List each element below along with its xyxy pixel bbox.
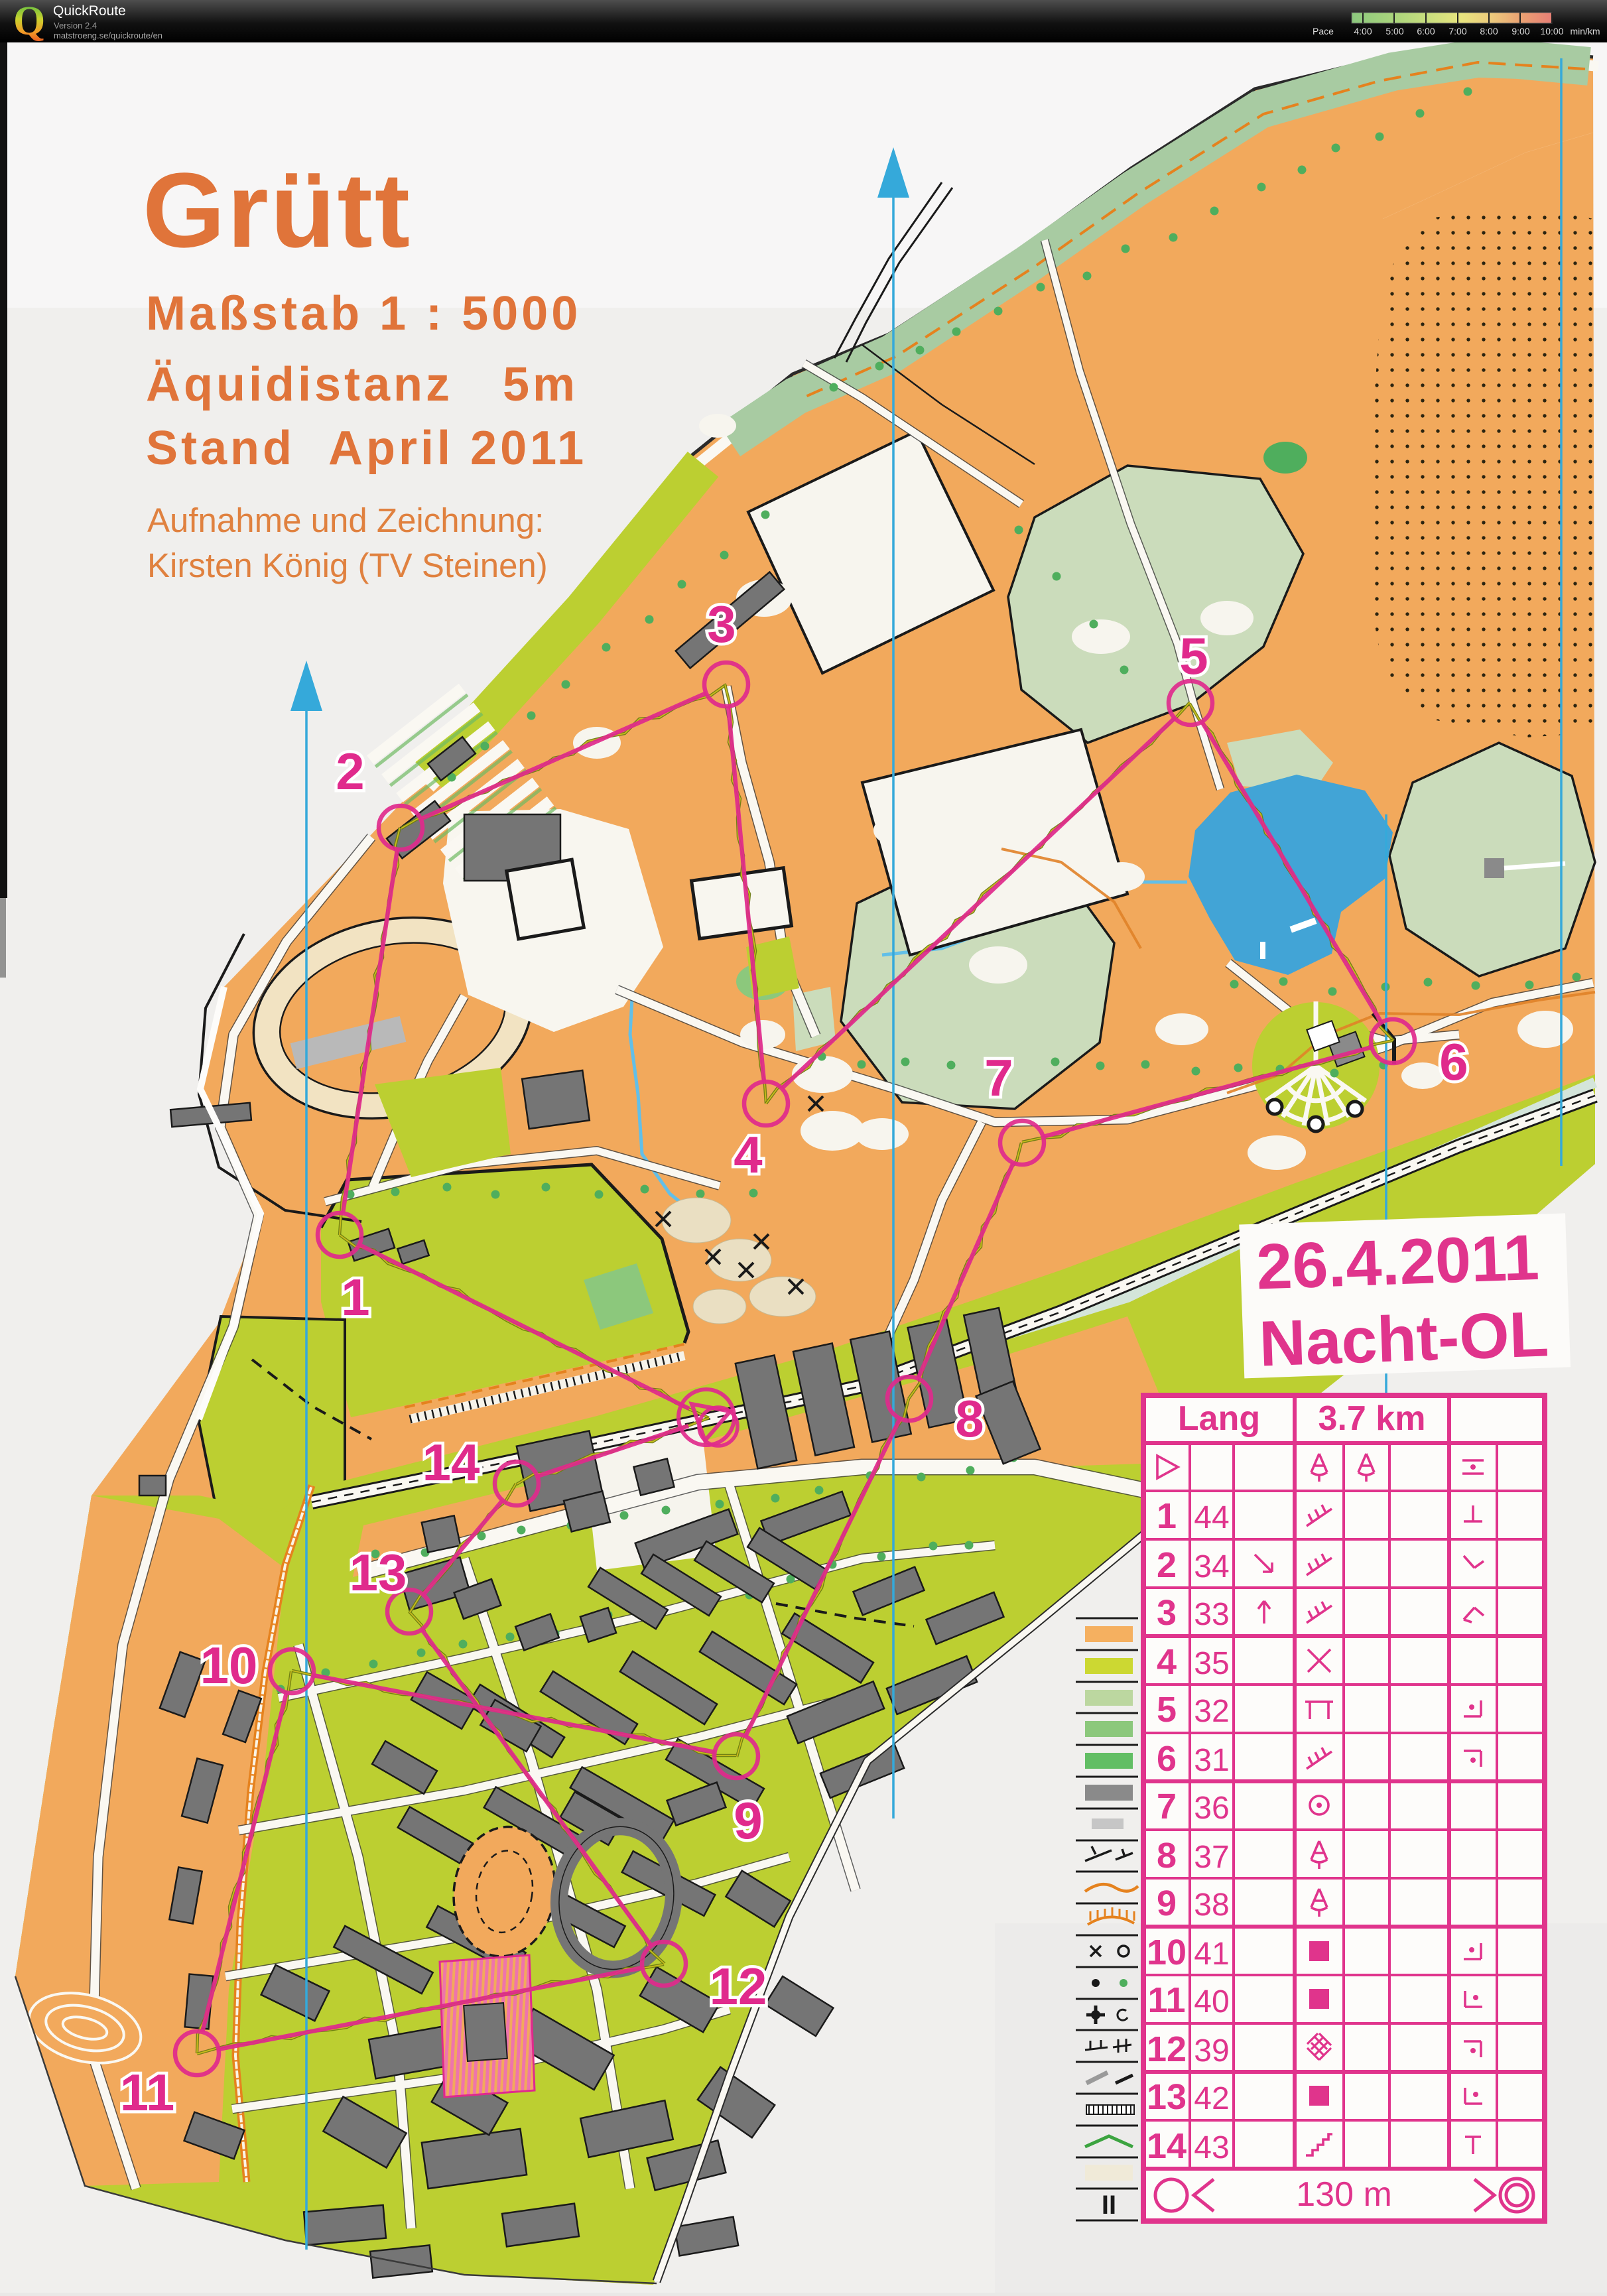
svg-text:Kirsten König (TV Steinen): Kirsten König (TV Steinen): [147, 546, 548, 584]
svg-text:9:00: 9:00: [1511, 26, 1529, 36]
svg-text:9: 9: [734, 1791, 762, 1850]
svg-text:3: 3: [1157, 1593, 1177, 1633]
svg-text:3: 3: [707, 595, 736, 653]
svg-text:37: 37: [1194, 1840, 1229, 1875]
svg-text:26.4.2011: 26.4.2011: [1255, 1221, 1541, 1303]
svg-text:10: 10: [1147, 1933, 1187, 1972]
svg-text:5:00: 5:00: [1385, 26, 1403, 36]
svg-text:Äquidistanz 5m: Äquidistanz 5m: [146, 358, 578, 411]
svg-text:41: 41: [1194, 1937, 1229, 1972]
svg-text:6: 6: [1439, 1033, 1468, 1091]
svg-text:1: 1: [1157, 1496, 1177, 1536]
svg-text:Q: Q: [13, 1, 45, 44]
svg-text:34: 34: [1194, 1549, 1229, 1584]
svg-text:4: 4: [734, 1125, 762, 1184]
svg-text:2: 2: [1157, 1545, 1177, 1585]
svg-text:Nacht-OL: Nacht-OL: [1258, 1297, 1550, 1379]
svg-text:2: 2: [336, 742, 364, 800]
svg-text:8: 8: [955, 1389, 984, 1448]
svg-text:31: 31: [1194, 1743, 1229, 1778]
svg-text:40: 40: [1194, 1984, 1229, 2019]
svg-text:5: 5: [1157, 1690, 1177, 1730]
svg-text:12: 12: [1147, 2029, 1187, 2069]
svg-text:42: 42: [1194, 2081, 1229, 2116]
svg-text:9: 9: [1157, 1883, 1177, 1923]
svg-text:130 m: 130 m: [1296, 2175, 1392, 2214]
svg-text:8: 8: [1157, 1836, 1177, 1876]
svg-text:Stand April 2011: Stand April 2011: [146, 422, 587, 475]
svg-text:38: 38: [1194, 1887, 1229, 1923]
svg-text:Grütt: Grütt: [143, 151, 412, 269]
svg-text:33: 33: [1194, 1597, 1229, 1632]
svg-text:3.7 km: 3.7 km: [1318, 1399, 1426, 1438]
svg-text:7: 7: [1157, 1787, 1177, 1826]
svg-text:35: 35: [1194, 1646, 1229, 1681]
svg-text:7: 7: [984, 1049, 1013, 1107]
svg-text:43: 43: [1194, 2130, 1229, 2165]
svg-text:11: 11: [1147, 1980, 1185, 2020]
svg-text:Maßstab 1 : 5000: Maßstab 1 : 5000: [146, 287, 581, 340]
svg-text:39: 39: [1194, 2033, 1229, 2069]
svg-text:6:00: 6:00: [1417, 26, 1435, 36]
svg-text:5: 5: [1179, 627, 1208, 685]
svg-text:13: 13: [1147, 2077, 1187, 2117]
svg-text:4: 4: [1157, 1642, 1177, 1682]
svg-text:1: 1: [341, 1268, 369, 1326]
svg-text:4:00: 4:00: [1354, 26, 1372, 36]
svg-text:36: 36: [1194, 1791, 1229, 1826]
svg-text:13: 13: [350, 1543, 407, 1602]
svg-text:44: 44: [1194, 1500, 1229, 1535]
svg-text:14: 14: [422, 1433, 480, 1492]
svg-text:10: 10: [200, 1636, 258, 1694]
svg-text:11: 11: [120, 2063, 174, 2122]
svg-text:32: 32: [1194, 1694, 1229, 1729]
svg-text:Aufnahme und Zeichnung:: Aufnahme und Zeichnung:: [147, 501, 544, 539]
svg-text:8:00: 8:00: [1480, 26, 1498, 36]
svg-text:10:00: 10:00: [1540, 26, 1563, 36]
svg-text:7:00: 7:00: [1448, 26, 1466, 36]
svg-text:II: II: [1102, 2191, 1116, 2220]
svg-text:Pace: Pace: [1313, 26, 1334, 36]
svg-text:14: 14: [1147, 2126, 1187, 2166]
svg-text:12: 12: [710, 1957, 767, 2015]
svg-text:min/km: min/km: [1570, 26, 1600, 36]
svg-text:6: 6: [1157, 1739, 1177, 1779]
svg-text:Lang: Lang: [1178, 1399, 1260, 1438]
